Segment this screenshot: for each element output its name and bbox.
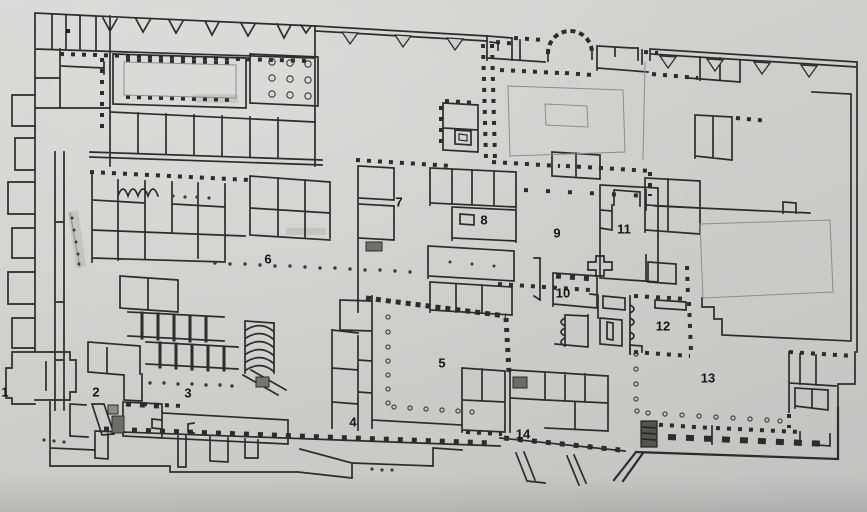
area-label-12: 12	[656, 320, 670, 333]
area-label-11: 11	[617, 223, 631, 236]
area-label-2: 2	[92, 386, 99, 399]
area-label-14: 14	[516, 428, 530, 441]
column-dots	[42, 59, 782, 472]
walls	[6, 13, 857, 485]
area-label-5: 5	[438, 357, 445, 370]
plan-drawing	[0, 0, 867, 512]
floor-plan-photo: 1234567891011121314	[0, 0, 867, 512]
area-label-1: 1	[1, 386, 8, 399]
area-label-8: 8	[480, 214, 487, 227]
area-label-7: 7	[395, 196, 402, 209]
pier-walls	[60, 31, 853, 450]
area-label-4: 4	[349, 416, 356, 429]
area-label-9: 9	[553, 227, 560, 240]
area-label-6: 6	[264, 253, 271, 266]
area-label-13: 13	[701, 372, 715, 385]
area-label-10: 10	[556, 287, 570, 300]
area-label-3: 3	[184, 387, 191, 400]
